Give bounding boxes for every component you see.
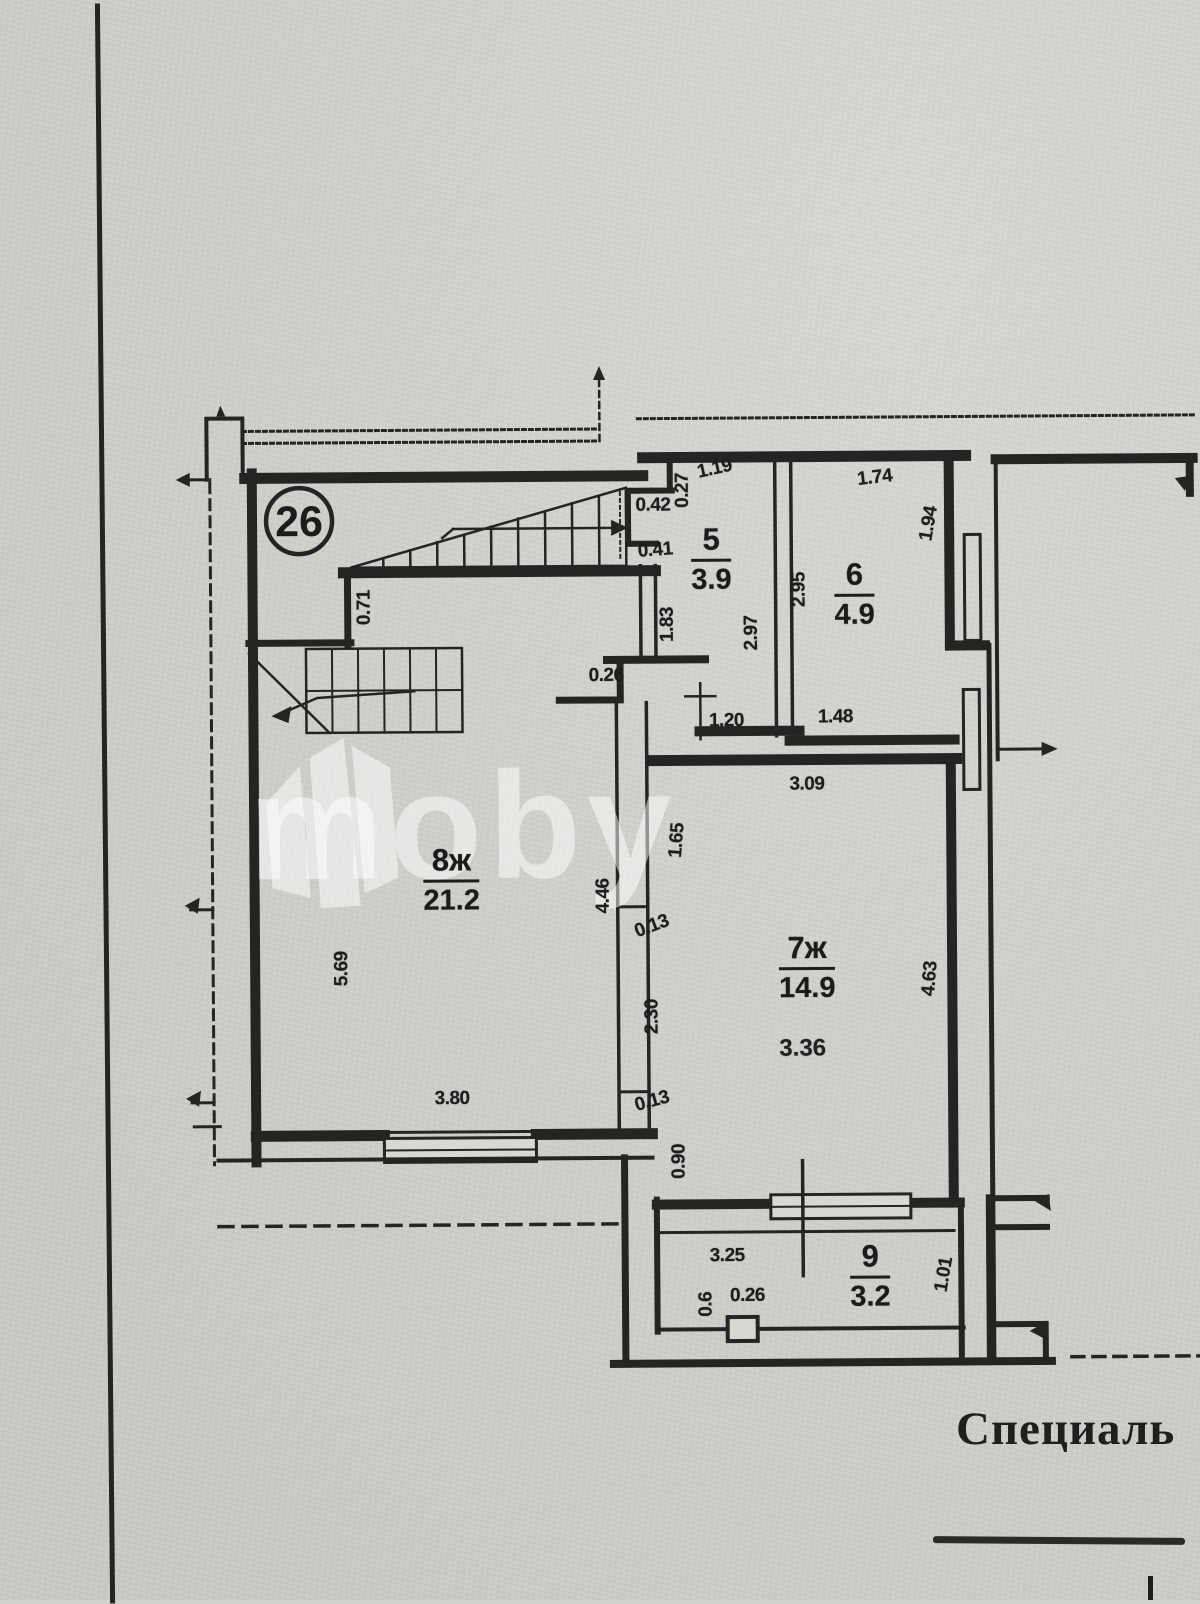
stairs-lower-flight: [249, 648, 463, 733]
dimension-label: 0.41: [637, 538, 674, 563]
page-fold-line: [97, 3, 112, 1603]
room-area: 4.9: [834, 597, 875, 632]
dimension-label: 1.48: [818, 706, 853, 728]
dimension-label: 4.63: [918, 960, 943, 997]
footer-caption: Специаль: [956, 1402, 1200, 1456]
dimension-label: 0.26: [589, 665, 624, 687]
unit-number: 26: [275, 498, 323, 546]
balcony-room9: [612, 1154, 1200, 1364]
room-7-note: 3.36: [779, 1034, 826, 1062]
dimension-label: 3.80: [435, 1088, 470, 1110]
dimension-label: 4.46: [593, 878, 615, 913]
unit-number-badge: 26: [266, 488, 332, 554]
dimension-label: 0.26: [730, 1285, 765, 1307]
room-label-5: 5 3.9: [691, 522, 732, 597]
door-threshold-symbol: [728, 1317, 758, 1341]
room-area: 3.9: [691, 562, 732, 597]
dimension-label: 0.42: [635, 495, 670, 517]
dimension-label: 2.95: [788, 572, 810, 607]
room-number: 8ж: [423, 842, 480, 882]
room-label-8: 8ж 21.2: [423, 842, 480, 917]
dimension-label: 0.71: [354, 590, 376, 625]
room-label-6: 6 4.9: [834, 557, 875, 632]
room-number: 6: [834, 557, 875, 597]
footer-tick: [1148, 1576, 1153, 1600]
dimension-label: 0.90: [668, 1144, 690, 1179]
dimension-label: 3.09: [789, 773, 824, 795]
dimension-label: 1.74: [856, 465, 893, 491]
room-number: 7ж: [779, 930, 836, 970]
room-area: 21.2: [423, 882, 480, 917]
dimension-label: 5.69: [331, 951, 353, 986]
room-number: 9: [850, 1238, 891, 1278]
left-boundary: [176, 473, 221, 1165]
outer-walls: [245, 471, 660, 1163]
dimension-label: 2.30: [641, 999, 663, 1034]
scanned-floor-plan-page: { "unit": { "number": "26" }, "watermark…: [0, 0, 1200, 1600]
window-symbol-room9: [771, 1194, 911, 1219]
dimension-label: 2.97: [741, 615, 763, 650]
floor-plan: 26: [0, 0, 1200, 1604]
room-label-9: 9 3.2: [850, 1238, 891, 1313]
room-area: 14.9: [779, 970, 836, 1005]
dimension-label: 0.6: [695, 1292, 717, 1317]
dimension-label: 3.25: [710, 1245, 745, 1267]
room8-bottom: [218, 1131, 653, 1227]
right-shaft: [962, 458, 1198, 790]
room-area: 3.2: [850, 1278, 891, 1313]
room-label-7: 7ж 14.9: [779, 930, 836, 1005]
dimension-label: 1.65: [665, 822, 690, 859]
stairs-upper-flight: [350, 488, 629, 568]
dimension-label: 0.27: [672, 473, 694, 508]
dimension-label: 1.20: [709, 710, 744, 732]
dimension-label: 1.83: [657, 607, 679, 642]
room-number: 5: [691, 522, 732, 562]
floor-plan-linework: 26: [0, 0, 1200, 1604]
